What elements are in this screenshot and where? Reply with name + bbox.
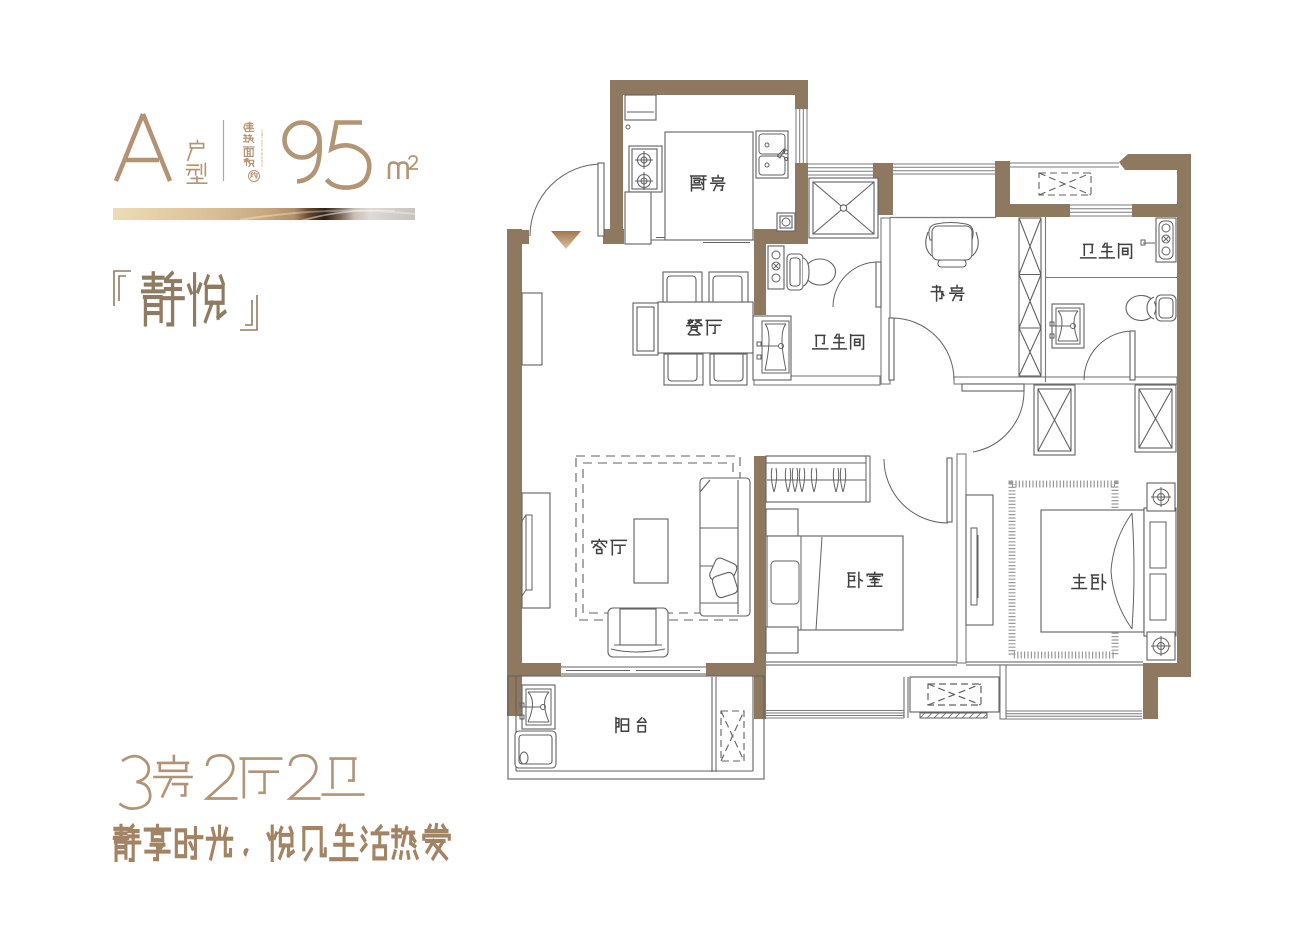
svg-text:CONSTRUCTION AREA: CONSTRUCTION AREA: [260, 129, 264, 167]
